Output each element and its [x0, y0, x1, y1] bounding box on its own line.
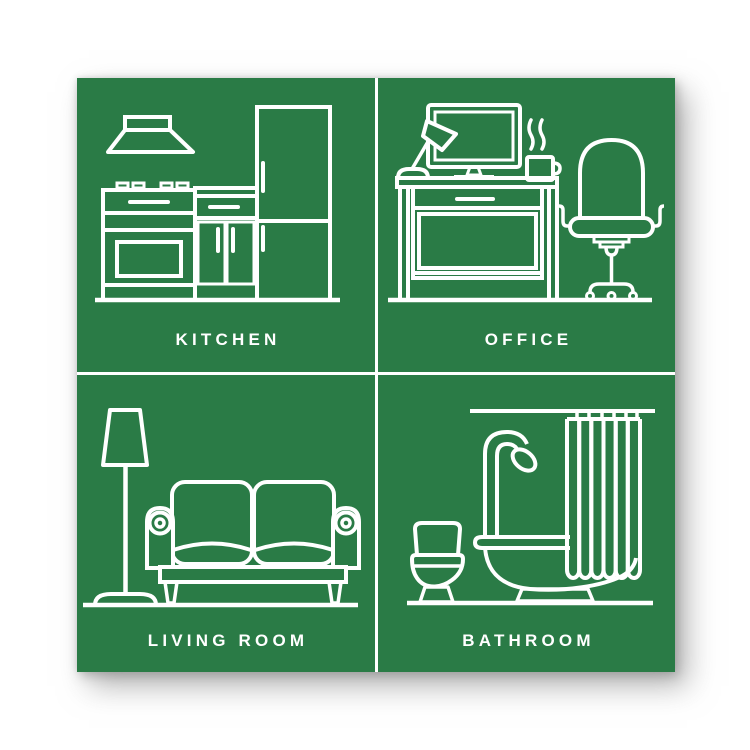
office-chair-icon — [559, 140, 664, 300]
quadrant-living-room: LIVING ROOM — [77, 375, 375, 672]
office-illustration — [378, 78, 675, 372]
bathtub-icon — [475, 537, 636, 601]
kitchen-illustration — [77, 78, 375, 372]
toilet-icon — [412, 523, 463, 602]
vertical-divider — [375, 78, 378, 672]
living-room-label: LIVING ROOM — [77, 631, 375, 651]
shower-head-icon — [485, 432, 539, 537]
sofa-icon — [147, 482, 359, 603]
kitchen-cabinet-icon — [195, 188, 257, 300]
refrigerator-icon — [257, 107, 330, 300]
horizontal-divider — [77, 372, 675, 375]
bathroom-label: BATHROOM — [378, 631, 675, 651]
poster-card: KITCHEN — [77, 78, 675, 672]
stove-icon — [103, 183, 195, 300]
floor-lamp-icon — [95, 410, 156, 605]
kitchen-label: KITCHEN — [77, 330, 375, 350]
quadrant-kitchen: KITCHEN — [77, 78, 375, 372]
desk-icon — [397, 178, 557, 300]
poster-stage: KITCHEN — [0, 0, 750, 750]
quadrant-bathroom: BATHROOM — [378, 375, 675, 672]
range-hood-icon — [108, 117, 193, 152]
bathroom-illustration — [378, 375, 675, 672]
living-room-illustration — [77, 375, 375, 672]
quadrant-office: OFFICE — [378, 78, 675, 372]
coffee-mug-icon — [527, 120, 560, 180]
office-label: OFFICE — [378, 330, 675, 350]
